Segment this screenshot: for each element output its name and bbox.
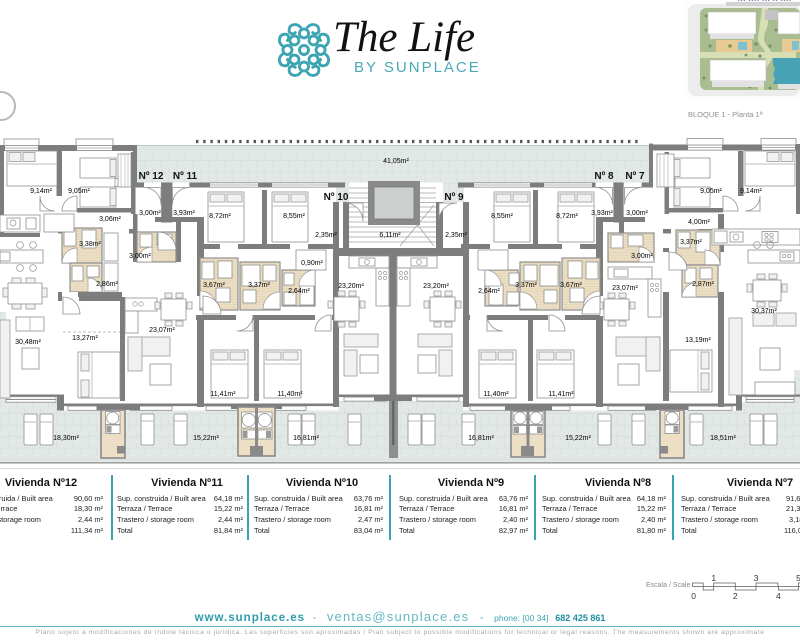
svg-text:30,37m²: 30,37m² [751,308,777,315]
svg-text:3,38m²: 3,38m² [79,241,101,248]
svg-text:Nº 12: Nº 12 [139,171,164,182]
svg-text:2,87m²: 2,87m² [692,281,714,288]
svg-text:2,64m²: 2,64m² [478,288,500,295]
svg-text:4,00m²: 4,00m² [688,219,710,226]
svg-text:8,55m²: 8,55m² [283,213,305,220]
svg-text:3,00m²: 3,00m² [631,253,653,260]
svg-text:Nº 10: Nº 10 [324,192,349,203]
svg-text:0,90m²: 0,90m² [301,260,323,267]
svg-text:23,07m²: 23,07m² [612,285,638,292]
svg-text:2,86m²: 2,86m² [96,281,118,288]
svg-text:Nº 11: Nº 11 [173,171,198,182]
svg-text:6,11m²: 6,11m² [379,232,401,239]
svg-text:41,05m²: 41,05m² [383,158,409,165]
svg-text:18,30m²: 18,30m² [53,435,79,442]
svg-text:16,81m²: 16,81m² [468,435,494,442]
svg-text:3,06m²: 3,06m² [99,216,121,223]
svg-text:11,41m²: 11,41m² [210,391,236,398]
svg-text:23,20m²: 23,20m² [338,283,364,290]
svg-text:8,72m²: 8,72m² [209,213,231,220]
svg-text:3,37m²: 3,37m² [515,282,537,289]
svg-text:13,27m²: 13,27m² [72,335,98,342]
svg-text:15,22m²: 15,22m² [193,435,219,442]
svg-text:3,93m²: 3,93m² [591,210,613,217]
svg-text:3: 3 [754,575,759,583]
svg-text:9,05m²: 9,05m² [68,188,90,195]
svg-text:4: 4 [776,591,781,601]
svg-text:Nº 8: Nº 8 [594,171,614,182]
svg-text:16,81m²: 16,81m² [293,435,319,442]
svg-text:9,05m²: 9,05m² [700,188,722,195]
svg-text:9,14m²: 9,14m² [740,188,762,195]
svg-text:8,72m²: 8,72m² [556,213,578,220]
svg-text:2,35m²: 2,35m² [315,232,337,239]
svg-text:18,51m²: 18,51m² [710,435,736,442]
svg-text:Nº 9: Nº 9 [444,192,464,203]
svg-text:13,19m²: 13,19m² [685,337,711,344]
svg-text:3,37m²: 3,37m² [680,239,702,246]
svg-text:2,64m²: 2,64m² [288,288,310,295]
svg-text:11,40m²: 11,40m² [483,391,509,398]
svg-text:2,35m²: 2,35m² [445,232,467,239]
svg-text:23,20m²: 23,20m² [423,283,449,290]
svg-text:11,41m²: 11,41m² [548,391,574,398]
svg-text:23,07m²: 23,07m² [149,327,175,334]
svg-text:2: 2 [733,591,738,601]
svg-text:0: 0 [691,591,696,601]
svg-text:8,55m²: 8,55m² [491,213,513,220]
svg-text:3,00m²: 3,00m² [626,210,648,217]
svg-text:3,00m²: 3,00m² [139,210,161,217]
svg-text:9,14m²: 9,14m² [30,188,52,195]
svg-text:30,48m²: 30,48m² [15,339,41,346]
svg-text:3,67m²: 3,67m² [203,282,225,289]
svg-text:3,93m²: 3,93m² [173,210,195,217]
svg-text:3,37m²: 3,37m² [248,282,270,289]
svg-text:Nº 7: Nº 7 [625,171,645,182]
svg-text:3,67m²: 3,67m² [560,282,582,289]
svg-text:11,40m²: 11,40m² [277,391,303,398]
svg-text:15,22m²: 15,22m² [565,435,591,442]
svg-text:5: 5 [796,575,800,583]
svg-text:1: 1 [711,575,716,583]
svg-text:3,00m²: 3,00m² [129,253,151,260]
